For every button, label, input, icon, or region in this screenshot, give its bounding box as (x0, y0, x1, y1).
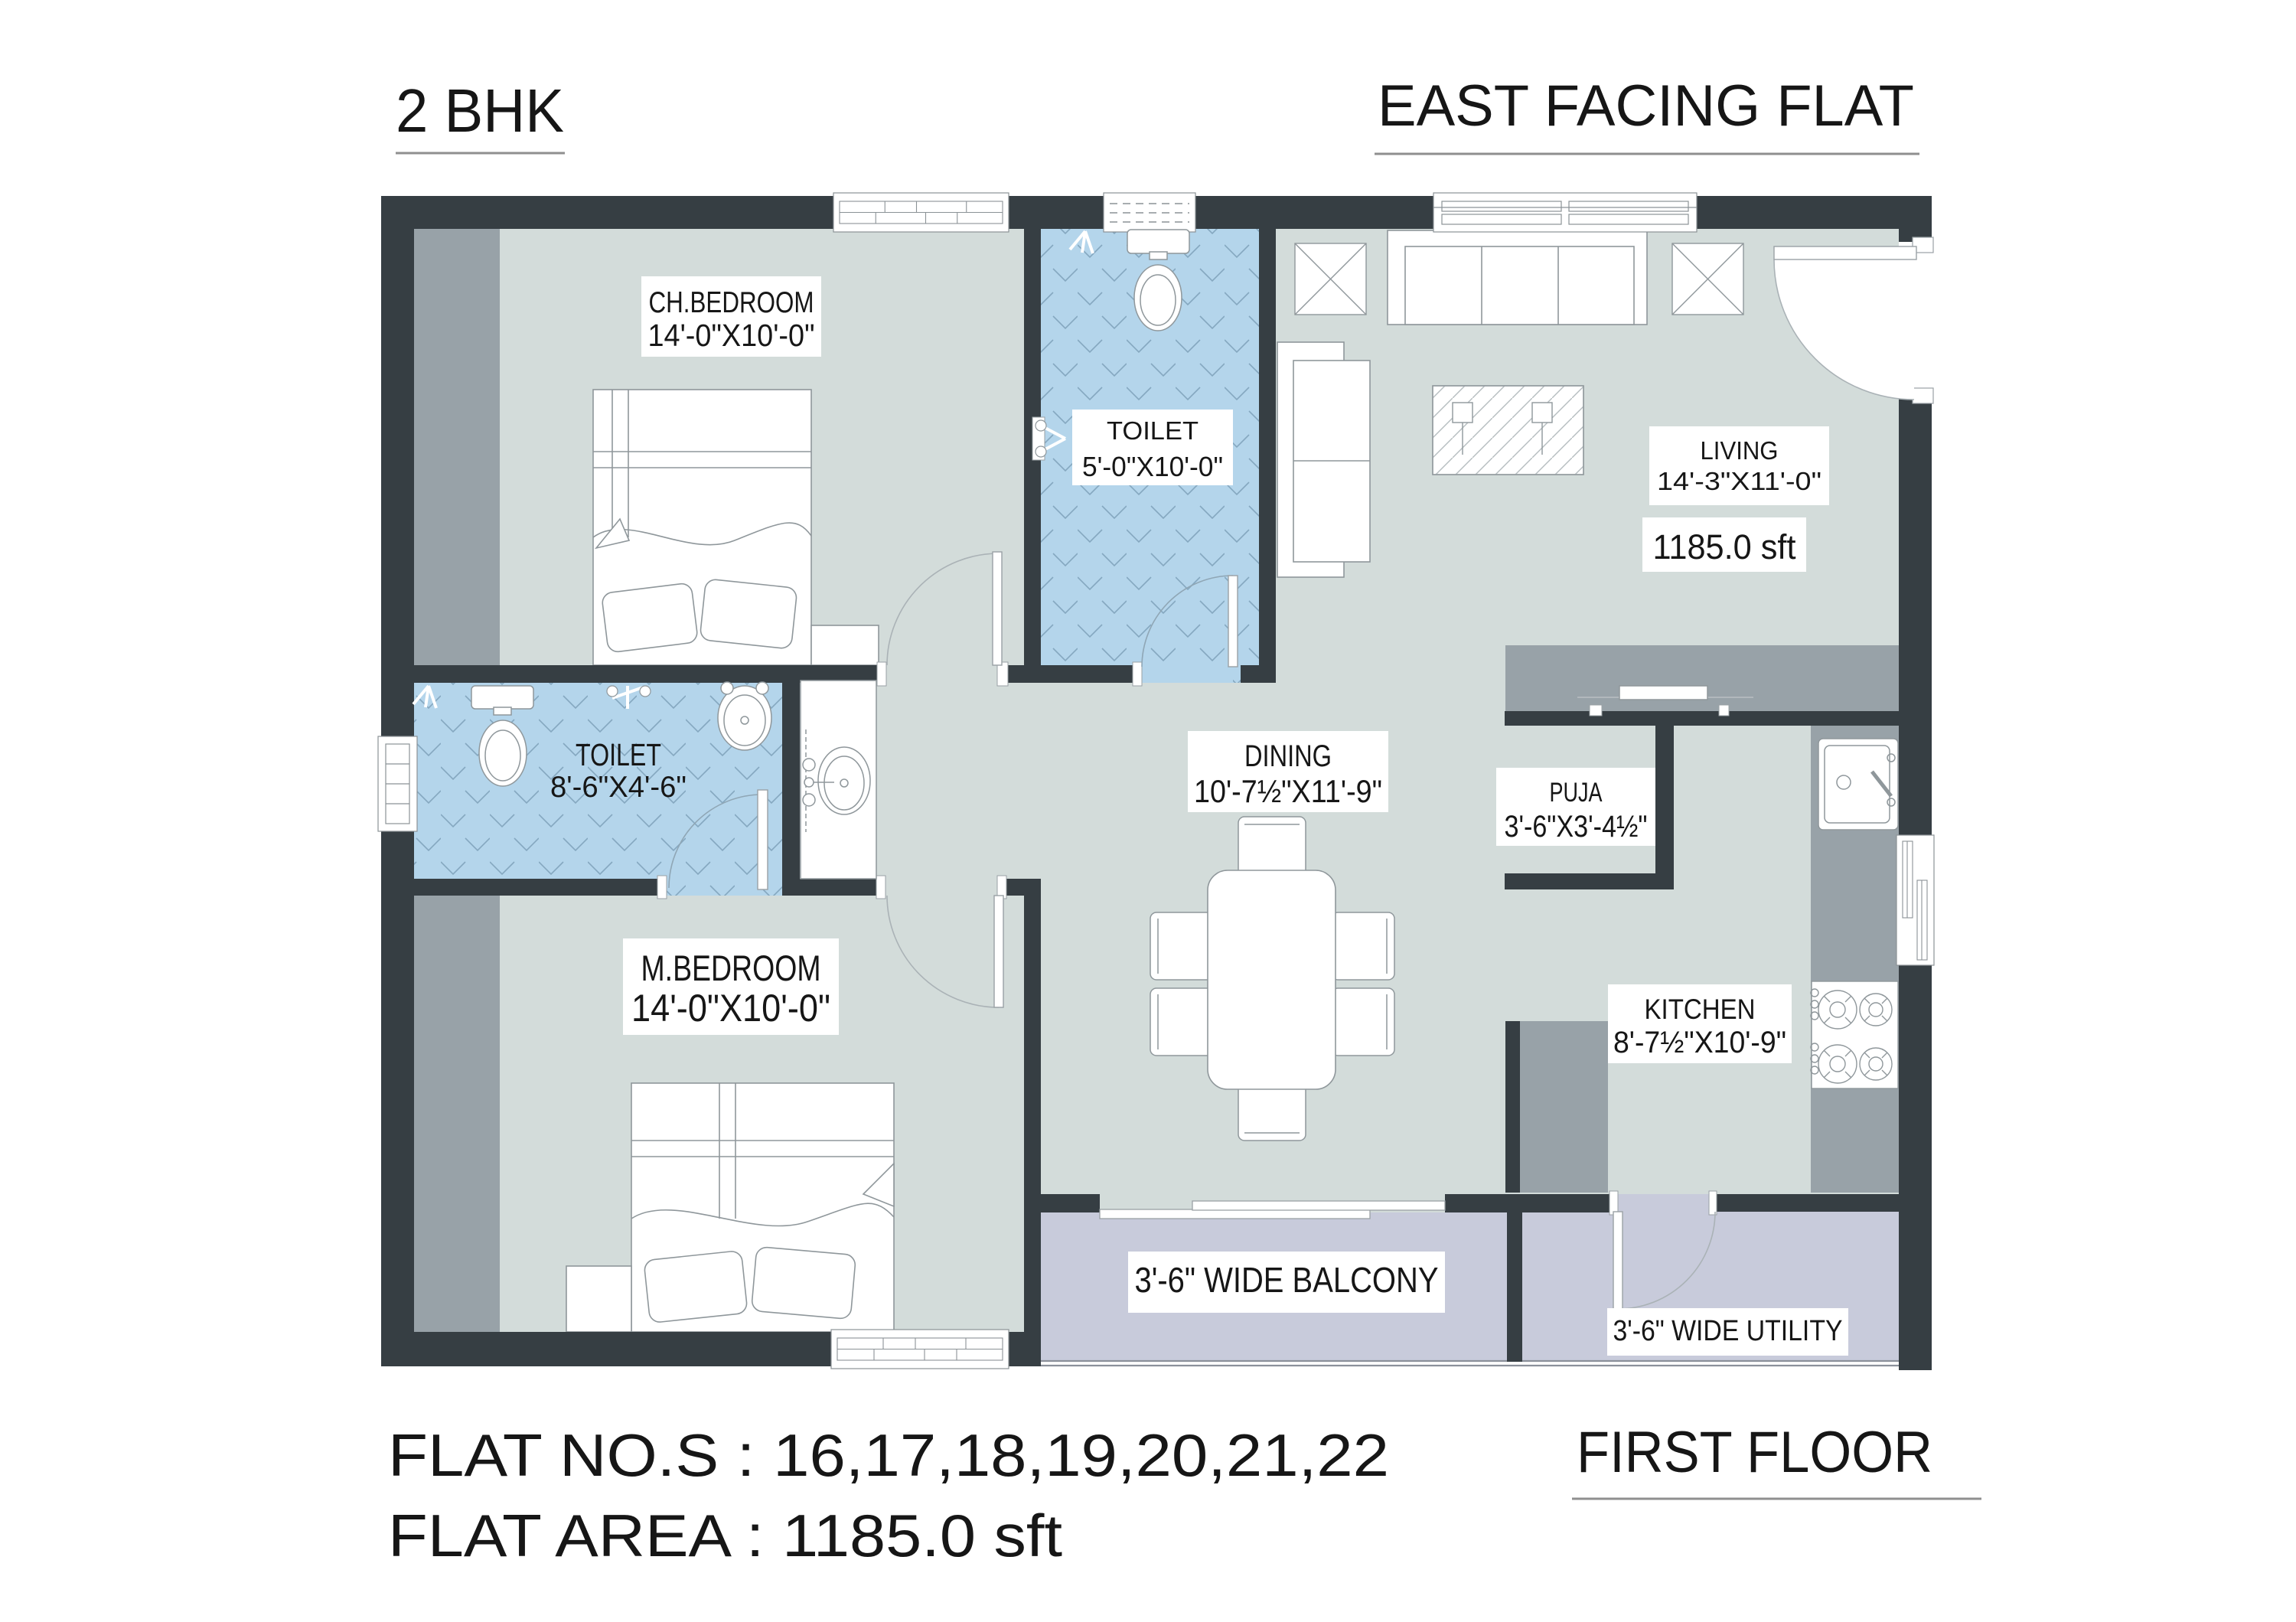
svg-text:14'-0"X10'-0": 14'-0"X10'-0" (631, 987, 830, 1030)
svg-text:M.BEDROOM: M.BEDROOM (641, 948, 821, 988)
svg-text:1185.0 sft: 1185.0 sft (1653, 527, 1796, 566)
svg-text:3'-6" WIDE UTILITY: 3'-6" WIDE UTILITY (1613, 1315, 1843, 1347)
svg-text:LIVING: LIVING (1701, 436, 1779, 465)
svg-text:EAST FACING FLAT: EAST FACING FLAT (1378, 73, 1914, 139)
svg-text:14'-0"X10'-0": 14'-0"X10'-0" (648, 318, 815, 353)
svg-text:8'-7½"X10'-9": 8'-7½"X10'-9" (1613, 1026, 1786, 1059)
svg-text:3'-6"X3'-4½": 3'-6"X3'-4½" (1505, 810, 1648, 844)
svg-text:14'-3"X11'-0": 14'-3"X11'-0" (1657, 467, 1821, 495)
svg-text:FLAT NO.S : 16,17,18,19,20,21,: FLAT NO.S : 16,17,18,19,20,21,22 (388, 1421, 1389, 1489)
svg-text:TOILET: TOILET (576, 737, 661, 772)
svg-text:FIRST FLOOR: FIRST FLOOR (1577, 1420, 1932, 1485)
svg-text:3'-6" WIDE BALCONY: 3'-6" WIDE BALCONY (1135, 1260, 1439, 1300)
svg-text:8'-6"X4'-6": 8'-6"X4'-6" (550, 771, 687, 804)
svg-text:TOILET: TOILET (1107, 416, 1199, 445)
svg-text:10'-7½"X11'-9": 10'-7½"X11'-9" (1194, 773, 1382, 809)
svg-text:2 BHK: 2 BHK (396, 77, 564, 145)
svg-text:DINING: DINING (1244, 739, 1332, 773)
svg-text:KITCHEN: KITCHEN (1645, 994, 1756, 1025)
svg-text:CH.BEDROOM: CH.BEDROOM (649, 286, 814, 319)
svg-text:FLAT AREA : 1185.0 sft: FLAT AREA : 1185.0 sft (388, 1502, 1062, 1569)
svg-text:PUJA: PUJA (1550, 778, 1603, 808)
svg-text:5'-0"X10'-0": 5'-0"X10'-0" (1082, 451, 1223, 482)
